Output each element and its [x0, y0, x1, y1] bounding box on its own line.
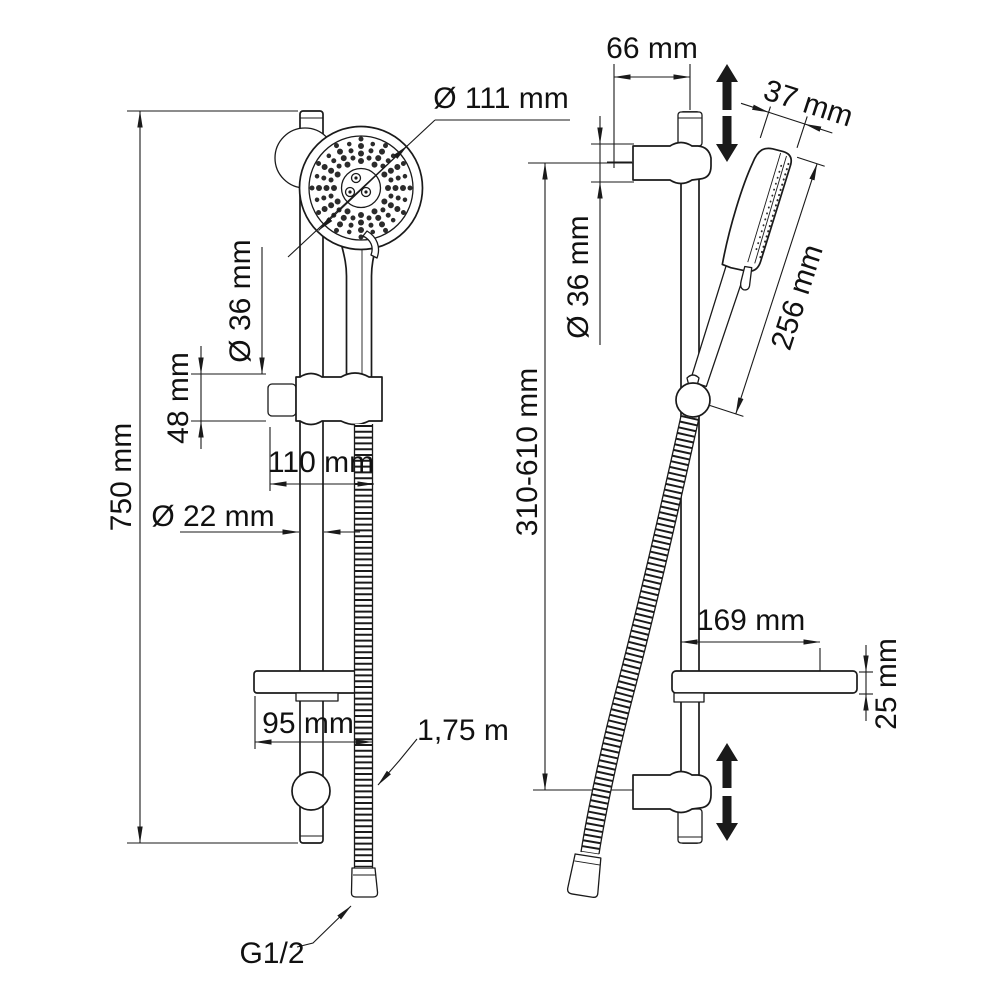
dim-holder-diameter: Ø 36 mm	[224, 239, 257, 362]
dim-holder-height: 48 mm	[162, 352, 195, 444]
technical-drawing-page: 750 mm Ø 111 mm Ø 36 mm 48 mm 110 mm Ø 2…	[0, 0, 1000, 1000]
dim-head-length: 256 mm	[765, 241, 830, 354]
wall-bracket-bottom	[633, 772, 711, 844]
dim-head-diameter: Ø 111 mm	[433, 82, 569, 115]
dim-shelf-thickness: 25 mm	[870, 638, 903, 730]
holder-bracket	[268, 373, 382, 425]
dim-head-thickness-group: 37 mm	[733, 68, 857, 163]
shelf-mount-side	[674, 693, 704, 702]
right-view: 37 mm 256 mm	[511, 32, 903, 898]
dim-wall-offset: 66 mm	[606, 32, 698, 65]
shelf-mount	[296, 693, 338, 701]
dim-bracket-diameter: Ø 36 mm	[562, 215, 595, 338]
clamp-knob	[292, 772, 330, 810]
dim-head-thickness: 37 mm	[760, 74, 857, 134]
dim-shelf-depth: 169 mm	[697, 604, 805, 637]
slide-arrows-top	[716, 64, 738, 162]
dim-shelf-width: 95 mm	[262, 707, 354, 740]
dim-rail-length: 750 mm	[105, 423, 138, 531]
dim-rail-diameter: Ø 22 mm	[151, 500, 274, 533]
hose-connector	[351, 868, 377, 897]
dim-hose-length: 1,75 m	[417, 714, 509, 747]
left-view: 750 mm Ø 111 mm Ø 36 mm 48 mm 110 mm Ø 2…	[105, 82, 570, 970]
shelf	[254, 671, 368, 693]
slide-arrows-bottom	[716, 743, 738, 841]
dim-height-range: 310-610 mm	[511, 368, 544, 536]
shower-hose	[355, 424, 373, 868]
technical-drawing: 750 mm Ø 111 mm Ø 36 mm 48 mm 110 mm Ø 2…	[0, 0, 1000, 1000]
hose-connector-side	[567, 854, 603, 898]
dim-holder-offset: 110 mm	[268, 446, 374, 479]
shelf-side	[672, 671, 857, 693]
dim-connection-thread: G1/2	[239, 937, 304, 970]
wall-bracket-top	[607, 112, 711, 184]
